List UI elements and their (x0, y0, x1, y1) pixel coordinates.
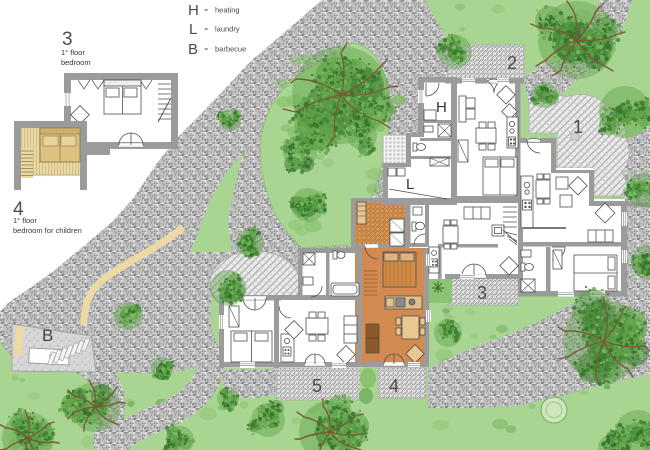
svg-text:2: 2 (507, 53, 517, 73)
svg-text:barbecue: barbecue (215, 45, 246, 54)
svg-text:3: 3 (477, 283, 487, 303)
svg-text:4: 4 (389, 376, 399, 396)
svg-text:5: 5 (312, 376, 322, 396)
svg-text:B: B (42, 326, 53, 345)
svg-text:1: 1 (573, 117, 583, 137)
svg-text:H: H (436, 99, 447, 116)
svg-text:3: 3 (62, 29, 73, 50)
svg-text:B: B (188, 41, 198, 58)
svg-text:-: - (204, 2, 208, 17)
svg-text:L: L (406, 176, 414, 193)
svg-text:laundry: laundry (215, 25, 240, 34)
svg-text:1° floor: 1° floor (13, 216, 37, 225)
svg-text:-: - (204, 21, 208, 36)
svg-text:1° floor: 1° floor (61, 48, 85, 57)
svg-text:bedroom: bedroom (61, 58, 91, 67)
svg-text:heating: heating (215, 6, 240, 15)
svg-text:bedroom for children: bedroom for children (13, 226, 82, 235)
svg-text:H: H (188, 2, 199, 19)
svg-text:L: L (189, 21, 197, 38)
svg-text:-: - (204, 41, 208, 56)
